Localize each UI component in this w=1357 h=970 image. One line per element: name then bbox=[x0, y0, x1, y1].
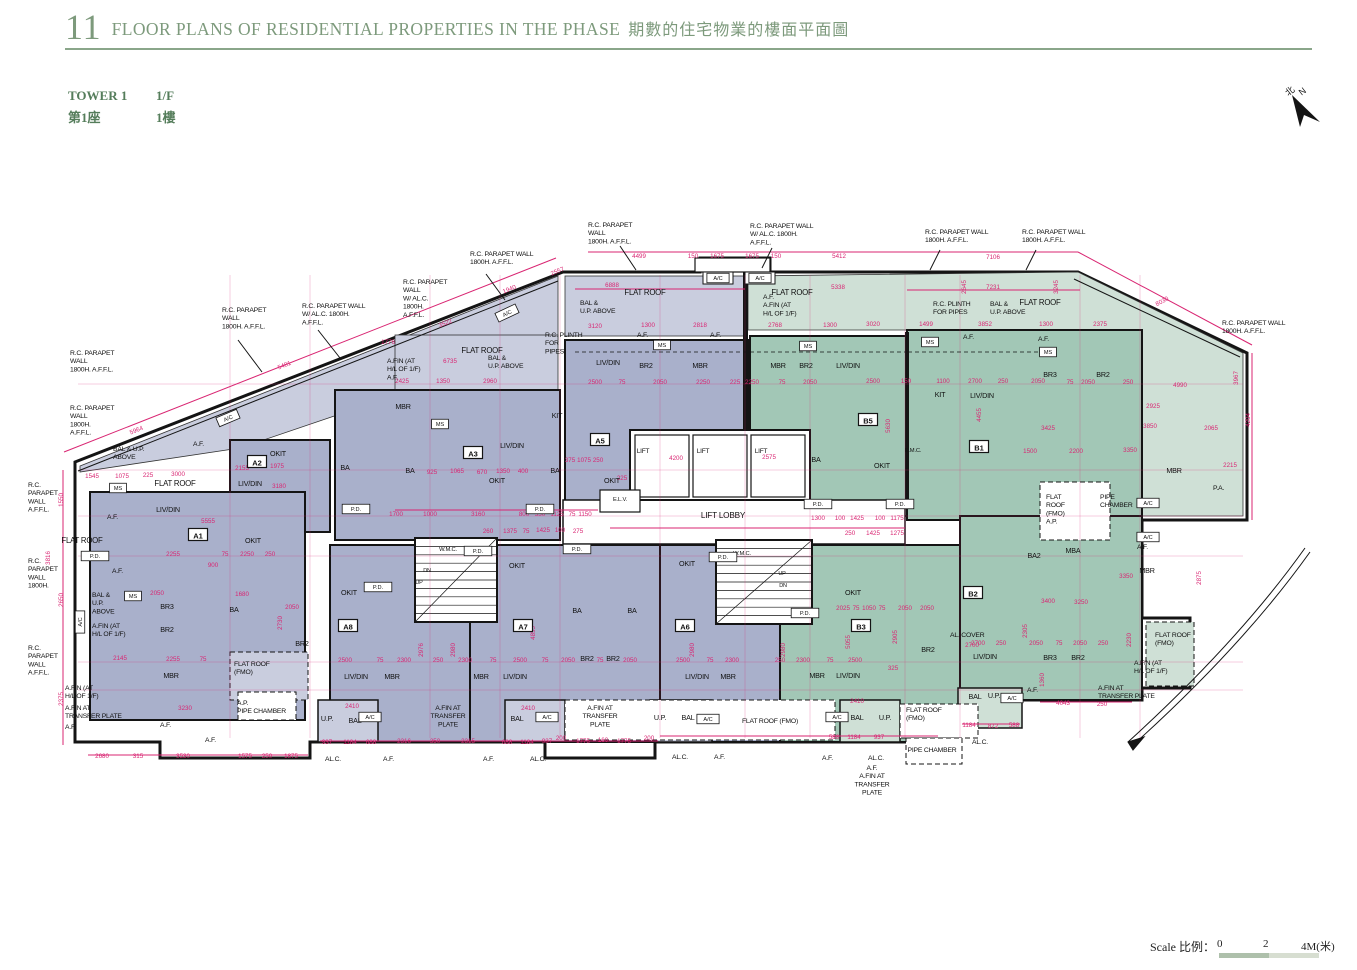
ac-platform bbox=[695, 258, 770, 272]
dimension-label: 1675 bbox=[745, 253, 759, 260]
room-label: MBR bbox=[720, 672, 735, 681]
drawing-line bbox=[486, 274, 505, 300]
annotation-label: H/L OF 1/F) bbox=[92, 631, 125, 638]
dimension-label: 2050 bbox=[623, 657, 637, 664]
annotation-label: FOR bbox=[545, 340, 559, 347]
dimension-label: 250 bbox=[845, 530, 856, 537]
annotation-label: A.F. bbox=[1137, 544, 1148, 551]
dimension-label: 400 bbox=[518, 468, 529, 475]
annotation-label: U.P. ABOVE bbox=[990, 309, 1026, 316]
annotation-label: R.C. PARAPET WALL bbox=[925, 229, 989, 236]
annotation-label: R.C. PARAPET WALL bbox=[302, 303, 366, 310]
dimension-label: 1184 bbox=[962, 722, 976, 729]
annotation-label: AL. COVER bbox=[950, 632, 985, 639]
equipment-box: MS bbox=[654, 340, 671, 350]
room-label: FLAT ROOF bbox=[461, 346, 503, 355]
dimension-label: 2875 bbox=[1196, 571, 1203, 585]
annotation-label: FLAT ROOF (FMO) bbox=[742, 718, 798, 725]
dimension-label: 2050 bbox=[803, 379, 817, 386]
room-label: BR2 bbox=[1096, 370, 1110, 379]
dimension-label: 225 bbox=[730, 379, 741, 386]
room-label: OKIT bbox=[341, 588, 358, 597]
dimension-label: 160 bbox=[598, 737, 609, 744]
dimension-label: 100 bbox=[875, 515, 886, 522]
annotation-label: A.F.F.L. bbox=[28, 507, 49, 514]
dimension-label: 1075 bbox=[115, 473, 129, 480]
dimension-label: 1300 bbox=[823, 322, 837, 329]
dimension-label: 2575 bbox=[762, 454, 776, 461]
north-label-zh: 北 bbox=[1283, 84, 1296, 97]
dimension-label: 4455 bbox=[976, 408, 983, 422]
dimension-label: 75 bbox=[222, 551, 229, 558]
room-label: LIFT bbox=[755, 448, 768, 455]
annotation-label: R.C. PARAPET WALL bbox=[1022, 229, 1086, 236]
annotation-label: R.C. PARAPET WALL bbox=[750, 223, 814, 230]
dimension-label: 150 bbox=[901, 378, 912, 385]
annotation-label: 1800H. A.F.F.L. bbox=[70, 366, 113, 373]
room-label: U.P. bbox=[321, 714, 333, 723]
dimension-label: 75 bbox=[523, 528, 530, 535]
room-label: OKIT bbox=[509, 561, 526, 570]
annotation-label: 1800H. A.F.F.L. bbox=[470, 259, 513, 266]
dimension-label: 1065 bbox=[450, 468, 464, 475]
equipment-box: A/C bbox=[826, 712, 848, 722]
equipment-box-label: P.D. bbox=[813, 502, 824, 508]
equipment-box-label: A/C bbox=[832, 715, 841, 721]
equipment-box: A/C bbox=[697, 714, 719, 724]
dimension-label: 3350 bbox=[1119, 573, 1133, 580]
room-label: LIV/DIN bbox=[970, 391, 994, 400]
equipment-box-label: P.D. bbox=[535, 507, 546, 513]
annotation-label: A.F. bbox=[112, 568, 123, 575]
annotation-label: BAL & bbox=[92, 592, 111, 599]
dimension-label: 250 bbox=[996, 640, 1007, 647]
annotation-label: TRANSFER bbox=[582, 713, 617, 720]
annotation-label: A.F. bbox=[387, 374, 398, 381]
dimension-label: 150 bbox=[771, 253, 782, 260]
room-label: E.L.V. bbox=[613, 497, 628, 503]
dimension-label: 75 bbox=[569, 511, 576, 518]
room-label: MBR bbox=[473, 672, 488, 681]
annotation-label: 1800H. A.F.F.L. bbox=[1022, 237, 1065, 244]
equipment-box-label: P.D. bbox=[473, 549, 484, 555]
dimension-label: 250 bbox=[1098, 640, 1109, 647]
dimension-label: 2500 bbox=[338, 657, 352, 664]
room-label: LIV/DIN bbox=[503, 672, 527, 681]
equipment-box-label: A/C bbox=[703, 717, 712, 723]
equipment-box: MS bbox=[800, 341, 817, 351]
equipment-box-label: P.D. bbox=[373, 585, 384, 591]
dimension-label: 1425 bbox=[536, 527, 550, 534]
room-label: BA2 bbox=[1028, 551, 1041, 560]
annotation-label: TRANSFER bbox=[430, 713, 465, 720]
dimension-label: 6735 bbox=[443, 358, 457, 365]
dimension-label: 872 bbox=[988, 723, 999, 730]
dimension-label: 250 bbox=[998, 378, 1009, 385]
dimension-label: 1499 bbox=[919, 321, 933, 328]
dimension-label: 100 bbox=[835, 515, 846, 522]
annotation-label: A.FIN AT bbox=[1098, 685, 1124, 692]
room-label: MBR bbox=[692, 361, 707, 370]
dimension-label: 2050 bbox=[561, 657, 575, 664]
annotation-label: P.A. bbox=[1213, 485, 1224, 492]
dimension-label: 1375 bbox=[503, 528, 517, 535]
dimension-label: 375 bbox=[565, 457, 576, 464]
annotation-label: A.F.F.L. bbox=[302, 319, 323, 326]
room-label: LIV/DIN bbox=[973, 652, 997, 661]
dimension-label: 2215 bbox=[1223, 462, 1237, 469]
dimension-label: 325 bbox=[888, 665, 899, 672]
dimension-label: 2050 bbox=[150, 590, 164, 597]
room-label: OKIT bbox=[679, 559, 696, 568]
room-label: BR2 bbox=[921, 645, 935, 654]
flat-badge-label: B1 bbox=[974, 444, 984, 453]
annotation-label: A.F. bbox=[107, 514, 118, 521]
equipment-box: MS bbox=[1040, 347, 1057, 357]
annotation-label: R.C. PLINTH bbox=[933, 301, 971, 308]
dimension-label: 250 bbox=[1097, 701, 1108, 708]
dimension-label: 2145 bbox=[113, 655, 127, 662]
room-label: LIFT bbox=[637, 448, 650, 455]
north-label-en: N bbox=[1297, 85, 1308, 97]
room-label: BA bbox=[572, 606, 582, 615]
flat-badge-label: B3 bbox=[856, 623, 866, 632]
dimension-label: 3230 bbox=[178, 705, 192, 712]
dimension-label: 3967 bbox=[1233, 371, 1240, 385]
dimension-label: 2980 bbox=[450, 643, 457, 657]
equipment-box-label: P.D. bbox=[895, 502, 906, 508]
equipment-box-label: P.D. bbox=[90, 554, 101, 560]
dimension-label: 1075 bbox=[577, 457, 591, 464]
dimension-label: 1150 bbox=[578, 511, 592, 518]
dimension-label: 100 bbox=[555, 527, 566, 534]
dimension-label: 3000 bbox=[171, 471, 185, 478]
annotation-label: H/L OF 1/F) bbox=[763, 310, 796, 317]
dimension-label: 2905 bbox=[892, 630, 899, 644]
dimension-label: 200 bbox=[556, 735, 567, 742]
flat-badge-label: A2 bbox=[252, 459, 262, 468]
annotation-label: 1800H. bbox=[28, 583, 49, 590]
flat-badge-label: B5 bbox=[863, 417, 873, 426]
dimension-label: 670 bbox=[477, 469, 488, 476]
annotation-label: U.P. ABOVE bbox=[488, 363, 524, 370]
room-label: BR3 bbox=[1043, 370, 1057, 379]
dimension-label: 7106 bbox=[986, 254, 1000, 261]
room-label: BA bbox=[405, 466, 415, 475]
annotation-label: 1800H. A.F.F.L. bbox=[588, 238, 631, 245]
annotation-label: FLAT ROOF bbox=[234, 661, 270, 668]
dimension-label: 2375 bbox=[1093, 321, 1107, 328]
room-label: LIV/DIN bbox=[836, 671, 860, 680]
dimension-label: 688 bbox=[502, 739, 513, 746]
annotation-label: A.F. bbox=[637, 332, 648, 339]
dimension-label: 1100 bbox=[936, 378, 950, 385]
annotation-label: A.F. bbox=[205, 737, 216, 744]
equipment-box: P.D. bbox=[464, 546, 492, 556]
room-label: BAL bbox=[851, 713, 864, 722]
dimension-label: 1545 bbox=[85, 473, 99, 480]
scale-tick-2: 2 bbox=[1263, 938, 1269, 950]
room-label: BR2 bbox=[580, 654, 594, 663]
dimension-label: 2315 bbox=[461, 738, 475, 745]
dimension-label: 75 bbox=[200, 656, 207, 663]
dimension-label: 225 bbox=[143, 472, 154, 479]
drawing-line bbox=[1026, 250, 1036, 270]
annotation-label: BAL & bbox=[990, 301, 1009, 308]
dimension-label: 5338 bbox=[831, 284, 845, 291]
annotation-label: R.C. PARAPET WALL bbox=[470, 251, 534, 258]
dimension-label: 1975 bbox=[270, 463, 284, 470]
scale-segment-light bbox=[1269, 953, 1319, 958]
dimension-label: 1050 bbox=[862, 605, 876, 612]
annotation-label: R.C. PARAPET bbox=[588, 222, 632, 229]
annotation-label: WALL bbox=[28, 661, 46, 668]
annotation-label: A.FIN (AT bbox=[763, 302, 791, 309]
annotation-label: WALL bbox=[403, 287, 421, 294]
equipment-box-label: MS bbox=[1044, 350, 1053, 356]
equipment-box: P.D. bbox=[886, 499, 914, 509]
room-label: LIV/DIN bbox=[238, 479, 262, 488]
annotation-label: 1800H. bbox=[70, 421, 91, 428]
room-label: MBR bbox=[1166, 466, 1181, 475]
annotation-label: FOR PIPES bbox=[933, 309, 968, 316]
room-label: DN bbox=[423, 568, 431, 574]
dimension-label: 250 bbox=[593, 457, 604, 464]
annotation-label: A.P. bbox=[1046, 519, 1057, 526]
dimension-label: 2645 bbox=[961, 280, 968, 294]
room-label: LIFT bbox=[697, 448, 710, 455]
equipment-box: MS bbox=[125, 591, 142, 601]
dimension-label: 75 bbox=[490, 657, 497, 664]
dimension-label: 2050 bbox=[1073, 640, 1087, 647]
dimension-label: 2980 bbox=[689, 643, 696, 657]
dimension-label: 150 bbox=[688, 253, 699, 260]
room-label: MBR bbox=[384, 672, 399, 681]
room-label: FLAT ROOF bbox=[61, 536, 103, 545]
room-label: BA bbox=[550, 466, 560, 475]
dimension-label: 5412 bbox=[832, 253, 846, 260]
dimension-label: 3245 bbox=[1053, 280, 1060, 294]
equipment-box-label: P.D. bbox=[351, 507, 362, 513]
equipment-box: A/C bbox=[1001, 693, 1023, 703]
annotation-label: A.F. bbox=[193, 441, 204, 448]
dimension-label: 75 bbox=[827, 657, 834, 664]
equipment-box: MS bbox=[432, 419, 449, 429]
equipment-box-label: A/C bbox=[542, 715, 551, 721]
dimension-label: 3400 bbox=[1041, 598, 1055, 605]
annotation-label: (FMO) bbox=[1046, 510, 1065, 517]
party-wall bbox=[905, 332, 909, 500]
room-label: LIV/DIN bbox=[596, 358, 620, 367]
dimension-label: 4990 bbox=[1173, 382, 1187, 389]
dimension-label: 1775 bbox=[617, 738, 631, 745]
dimension-label: 1184 bbox=[847, 734, 861, 741]
annotation-label: WALL bbox=[588, 230, 606, 237]
equipment-box: A/C bbox=[1137, 532, 1159, 542]
equipment-box-label: A/C bbox=[1143, 535, 1152, 541]
dimension-label: 2500 bbox=[848, 657, 862, 664]
annotation-label: A.P. bbox=[237, 700, 248, 707]
annotation-label: A.F. bbox=[714, 754, 725, 761]
room-label: LIFT LOBBY bbox=[701, 511, 746, 520]
dimension-label: 75 bbox=[853, 605, 860, 612]
annotation-label: A.F. bbox=[160, 722, 171, 729]
equipment-box: A/C bbox=[707, 273, 729, 283]
dimension-label: 2700 bbox=[968, 378, 982, 385]
annotation-label: PIPE bbox=[1100, 494, 1115, 501]
equipment-box: P.D. bbox=[791, 608, 819, 618]
drawing-line bbox=[238, 340, 262, 372]
annotation-label: TRANSFER PLATE bbox=[65, 713, 122, 720]
drawing-line bbox=[930, 250, 940, 270]
scale-label: Scale 比例： bbox=[1150, 938, 1215, 955]
dimension-label: 1275 bbox=[890, 530, 904, 537]
dimension-label: 2050 bbox=[920, 605, 934, 612]
annotation-label: W/ AL.C. bbox=[403, 295, 429, 302]
dimension-label: 5055 bbox=[845, 635, 852, 649]
dimension-label: 2680 bbox=[95, 753, 109, 760]
annotation-label: U.P. ABOVE bbox=[580, 308, 616, 315]
annotation-label: A.F. bbox=[1038, 336, 1049, 343]
room-label: BA bbox=[229, 605, 239, 614]
dimension-label: 2025 bbox=[836, 605, 850, 612]
room-label: BR2 bbox=[160, 625, 174, 634]
dimension-label: 7231 bbox=[986, 284, 1000, 291]
annotation-label: WALL bbox=[28, 574, 46, 581]
dimension-label: 75 bbox=[707, 657, 714, 664]
annotation-label: 1800H. A.F.F.L. bbox=[925, 237, 968, 244]
annotation-label: PARAPET bbox=[28, 566, 58, 573]
annotation-label: ABOVE bbox=[113, 454, 136, 461]
dimension-label: 4204 bbox=[1245, 413, 1252, 427]
room-label: FLAT ROOF bbox=[1019, 298, 1061, 307]
flat-badge-label: A3 bbox=[468, 450, 478, 459]
dimension-label: 2650 bbox=[58, 593, 65, 607]
flat-badge-label: A7 bbox=[518, 623, 528, 632]
dimension-label: 250 bbox=[1123, 379, 1134, 386]
annotation-label: BAL & U.P. bbox=[113, 446, 145, 453]
annotation-label: U.P. bbox=[92, 600, 104, 607]
equipment-box-label: A/C bbox=[365, 715, 374, 721]
room-label: MBR bbox=[163, 671, 178, 680]
dimension-label: 937 bbox=[542, 738, 553, 745]
room-label: BA bbox=[627, 606, 637, 615]
dimension-label: 2050 bbox=[1081, 379, 1095, 386]
dimension-label: 2050 bbox=[1029, 640, 1043, 647]
dimension-label: 5481 bbox=[277, 360, 293, 372]
dimension-label: 588 bbox=[1009, 722, 1020, 729]
dimension-label: 2050 bbox=[1031, 378, 1045, 385]
dimension-label: 1175 bbox=[890, 515, 904, 522]
dimension-label: 4043 bbox=[1056, 700, 1070, 707]
room-label: U.P. bbox=[879, 713, 891, 722]
dimension-label: 75 bbox=[542, 657, 549, 664]
room-label: BR2 bbox=[606, 654, 620, 663]
annotation-label: (FMO) bbox=[1155, 640, 1174, 647]
dimension-label: 1500 bbox=[1023, 448, 1037, 455]
annotation-label: WALL bbox=[28, 498, 46, 505]
annotation-label: WALL bbox=[70, 413, 88, 420]
equipment-box: A/C bbox=[1137, 498, 1159, 508]
equipment-box-label: MS bbox=[926, 340, 935, 346]
room-label: E.M.C. bbox=[905, 448, 922, 454]
dimension-label: 1300 bbox=[641, 322, 655, 329]
annotation-label: A.FIN AT bbox=[587, 705, 613, 712]
room-label: BR2 bbox=[295, 639, 309, 648]
dimension-label: 1675 bbox=[710, 253, 724, 260]
room-label: MBR bbox=[809, 671, 824, 680]
equipment-box-label: MS bbox=[129, 594, 138, 600]
dimension-label: 250 bbox=[433, 657, 444, 664]
dimension-label: 3020 bbox=[866, 321, 880, 328]
dimension-label: 1184 bbox=[520, 739, 534, 746]
annotation-label: PARAPET bbox=[28, 490, 58, 497]
dimension-label: 2250 bbox=[696, 379, 710, 386]
room-label: BAL bbox=[682, 713, 695, 722]
equipment-box: MS bbox=[110, 483, 127, 493]
dimension-label: 937 bbox=[322, 739, 333, 746]
equipment-box-label: MS bbox=[436, 422, 445, 428]
dimension-label: 1000 bbox=[423, 511, 437, 518]
equipment-box-label: A/C bbox=[713, 276, 722, 282]
dimension-label: 3160 bbox=[471, 511, 485, 518]
dimension-label: 2730 bbox=[277, 616, 284, 630]
dimension-label: 688 bbox=[366, 739, 377, 746]
flat-badge-label: A1 bbox=[193, 532, 203, 541]
dimension-label: 2500 bbox=[676, 657, 690, 664]
equipment-box: A/C bbox=[536, 712, 558, 722]
annotation-label: A.F. bbox=[1027, 687, 1038, 694]
dimension-label: 75 bbox=[597, 657, 604, 664]
room-label: FLAT ROOF bbox=[771, 288, 813, 297]
annotation-label: R.C. PARAPET bbox=[403, 279, 447, 286]
equipment-box: P.D. bbox=[81, 551, 109, 561]
equipment-box: A/C bbox=[749, 273, 771, 283]
dimension-label: 2230 bbox=[1126, 633, 1133, 647]
dimension-label: 250 bbox=[775, 657, 786, 664]
dimension-label: 588 bbox=[829, 734, 840, 741]
lift-2 bbox=[693, 435, 747, 497]
dimension-label: 2925 bbox=[1146, 403, 1160, 410]
annotation-label: BAL & bbox=[580, 300, 599, 307]
room-label: BR3 bbox=[160, 602, 174, 611]
annotation-label: PIPES bbox=[545, 348, 565, 355]
dimension-label: 1184 bbox=[343, 739, 357, 746]
annotation-label: TRANSFER bbox=[854, 781, 889, 788]
annotation-label: FLAT ROOF bbox=[906, 707, 942, 714]
equipment-box: P.D. bbox=[342, 504, 370, 514]
dimension-label: 3250 bbox=[1074, 599, 1088, 606]
annotation-label: A.F. bbox=[822, 755, 833, 762]
room-label: OKIT bbox=[845, 588, 862, 597]
dimension-label: 75 bbox=[377, 657, 384, 664]
dimension-label: 2050 bbox=[653, 379, 667, 386]
room-label: LIV/DIN bbox=[344, 672, 368, 681]
dimension-label: 3850 bbox=[1143, 423, 1157, 430]
room-label: BAL bbox=[969, 692, 982, 701]
room-label: BR2 bbox=[1071, 653, 1085, 662]
flat-badge-label: A5 bbox=[595, 437, 605, 446]
annotation-label: 1800H. A.F.F.L. bbox=[222, 323, 265, 330]
dimension-label: 315 bbox=[133, 753, 144, 760]
equipment-box: A/C bbox=[359, 712, 381, 722]
dimension-label: 2410 bbox=[521, 705, 535, 712]
dimension-label: 2300 bbox=[796, 657, 810, 664]
room-label: LIV/DIN bbox=[836, 361, 860, 370]
dimension-label: 75 bbox=[779, 379, 786, 386]
room-label: MBR bbox=[1139, 566, 1154, 575]
scale-tick-0: 0 bbox=[1217, 938, 1223, 950]
